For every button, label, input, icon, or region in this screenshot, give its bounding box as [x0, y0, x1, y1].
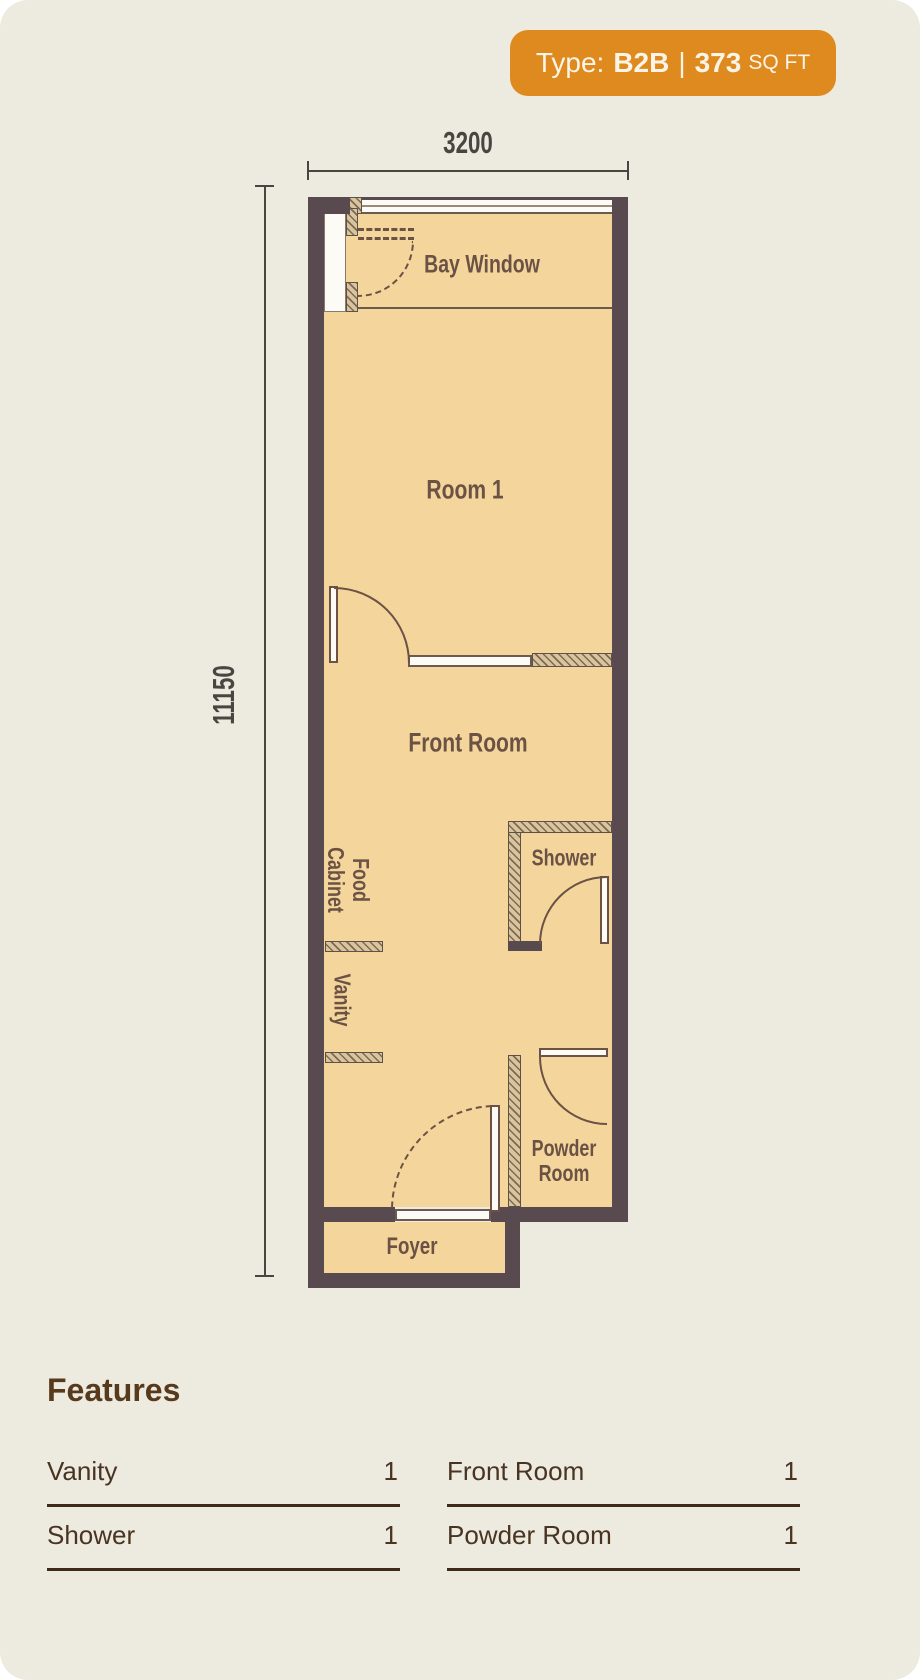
bay-window-glazing [362, 197, 612, 214]
food-cabinet-stub-wall [325, 941, 383, 952]
height-dimension-line [264, 186, 266, 1277]
right-wall [612, 197, 628, 1222]
shower-door-jamb [508, 941, 542, 951]
badge-area-unit: SQ FT [748, 51, 810, 75]
shower-label: Shower [532, 846, 597, 871]
features-section: Features Vanity 1 Shower 1 Front Room 1 … [47, 1372, 800, 1571]
shower-left-wall [508, 832, 521, 943]
foyer-right-wall [505, 1222, 520, 1273]
feature-name: Powder Room [447, 1520, 612, 1551]
feature-count: 1 [384, 1520, 398, 1551]
bottom-wall-right [491, 1207, 628, 1222]
badge-type-value: B2B [613, 47, 669, 79]
features-column-left: Vanity 1 Shower 1 [47, 1443, 400, 1571]
vanity-stub-wall [325, 1052, 383, 1063]
feature-row: Vanity 1 [47, 1443, 400, 1507]
powder-left-wall [508, 1055, 521, 1207]
feature-name: Vanity [47, 1456, 117, 1487]
bay-left-hatch-bottom [346, 282, 358, 312]
room1-label: Room 1 [426, 475, 503, 504]
foyer-label: Foyer [387, 1234, 438, 1260]
features-heading: Features [47, 1372, 800, 1409]
left-window-channel [324, 206, 346, 312]
partition-hatch [532, 653, 612, 667]
vanity-label: Vanity [330, 974, 355, 1027]
badge-divider: | [678, 47, 685, 79]
food-cabinet-label: Food Cabinet [323, 847, 373, 913]
bay-window-label: Bay Window [424, 252, 540, 279]
powder-door-leaf [539, 1048, 608, 1057]
feature-row: Powder Room 1 [447, 1507, 800, 1571]
width-dimension-line [308, 170, 629, 172]
feature-count: 1 [784, 1520, 798, 1551]
badge-area-value: 373 [695, 47, 742, 79]
room1-partition-wall [408, 655, 532, 667]
feature-name: Shower [47, 1520, 135, 1551]
powder-room-label: Powder Room [532, 1136, 597, 1186]
foyer-bottom-wall [308, 1273, 520, 1288]
front-room-label: Front Room [408, 728, 527, 757]
height-dimension-tick-bottom [255, 1275, 274, 1277]
badge-type-prefix: Type: [536, 47, 604, 79]
features-column-right: Front Room 1 Powder Room 1 [447, 1443, 800, 1571]
bay-door-track-line-2 [358, 237, 414, 240]
feature-name: Front Room [447, 1456, 584, 1487]
width-dimension-tick-left [307, 161, 309, 180]
shower-top-wall [508, 821, 612, 833]
bay-door-track-line-1 [358, 228, 414, 231]
bottom-wall-left [308, 1207, 395, 1222]
height-dimension-label: 11150 [206, 665, 242, 725]
floorplan-card: Type: B2B | 373 SQ FT [0, 0, 920, 1680]
feature-count: 1 [384, 1456, 398, 1487]
height-dimension-tick-top [255, 185, 274, 187]
entry-threshold [395, 1209, 491, 1221]
feature-count: 1 [784, 1456, 798, 1487]
unit-type-badge: Type: B2B | 373 SQ FT [510, 30, 836, 96]
top-wall-corner [308, 197, 350, 214]
width-dimension-tick-right [627, 161, 629, 180]
bay-window-sill-line [358, 307, 612, 309]
feature-row: Shower 1 [47, 1507, 400, 1571]
width-dimension-label: 3200 [443, 125, 493, 161]
feature-row: Front Room 1 [447, 1443, 800, 1507]
left-wall [308, 197, 324, 1283]
